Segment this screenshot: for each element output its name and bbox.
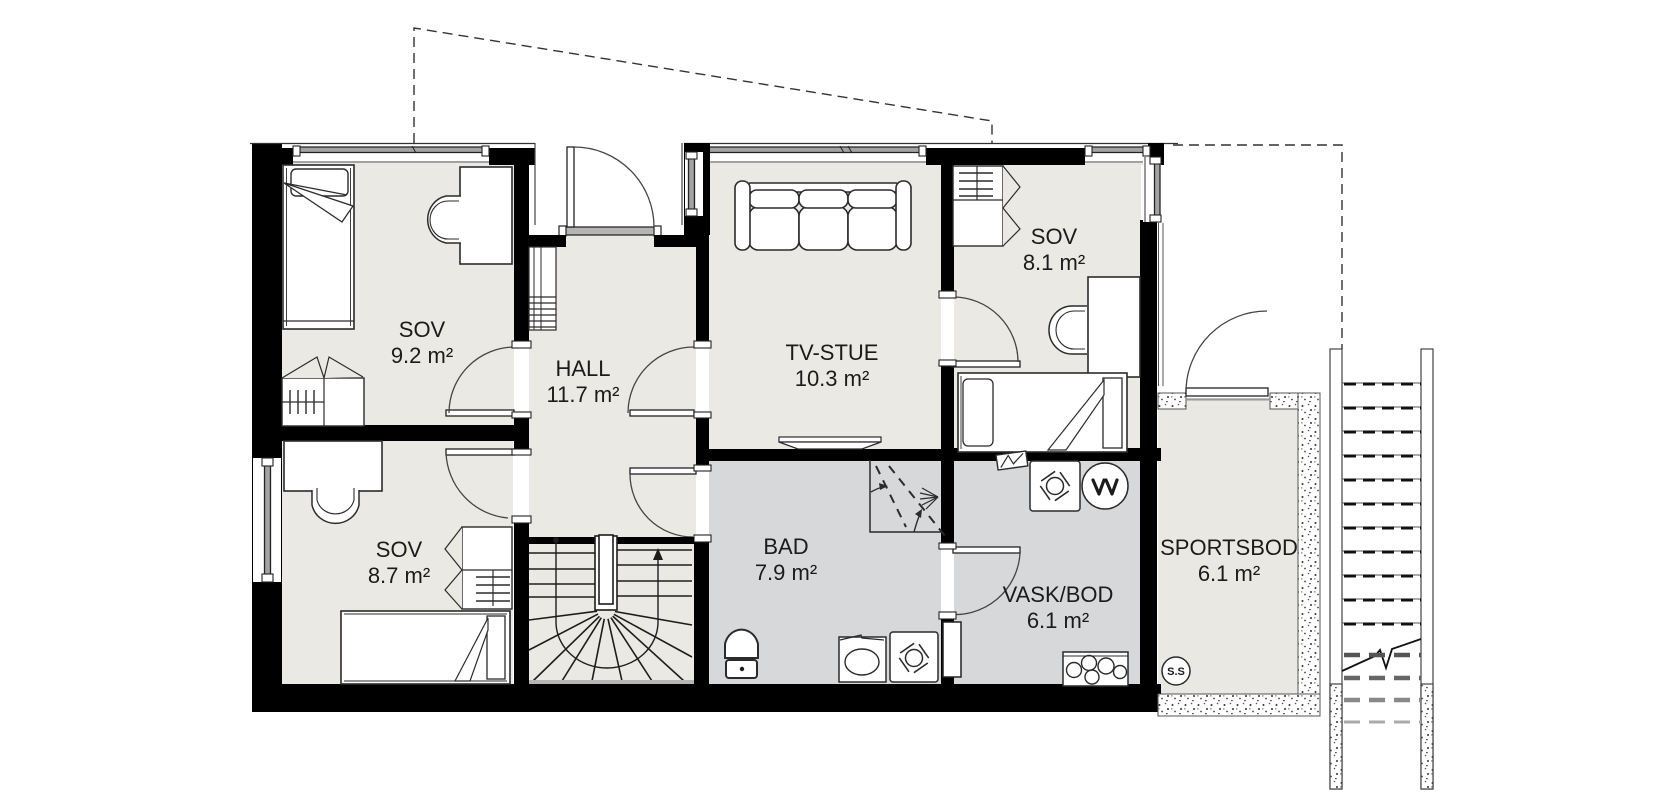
svg-text:VASK/BOD: VASK/BOD [1003,582,1114,607]
svg-text:6.1 m²: 6.1 m² [1198,561,1260,586]
svg-text:6.1 m²: 6.1 m² [1027,608,1089,633]
svg-text:9.2 m²: 9.2 m² [391,343,453,368]
svg-text:HALL: HALL [555,356,610,381]
svg-text:11.7 m²: 11.7 m² [547,382,620,407]
svg-text:7.9 m²: 7.9 m² [755,560,817,585]
svg-text:10.3 m²: 10.3 m² [795,366,870,391]
svg-text:SOV: SOV [1031,224,1078,249]
svg-text:BAD: BAD [763,534,808,559]
svg-text:8.1 m²: 8.1 m² [1023,250,1085,275]
svg-text:SOV: SOV [399,317,446,342]
svg-text:S.S: S.S [1167,666,1185,678]
svg-text:SOV: SOV [376,537,423,562]
svg-text:8.7 m²: 8.7 m² [368,563,430,588]
svg-text:SPORTSBOD: SPORTSBOD [1160,535,1298,560]
svg-text:TV-STUE: TV-STUE [786,340,879,365]
